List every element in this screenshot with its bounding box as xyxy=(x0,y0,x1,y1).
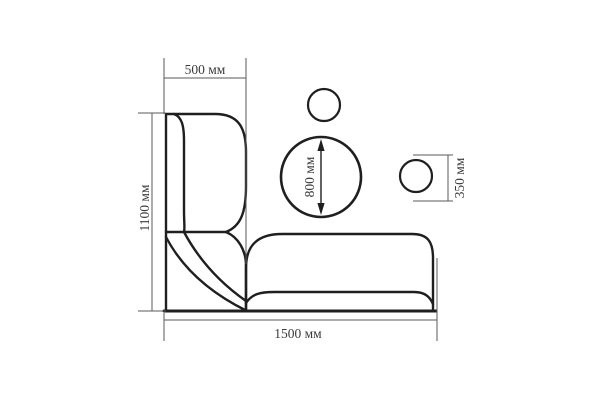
technical-drawing-canvas: 500 мм 1100 мм 1500 мм 800 мм 350 мм xyxy=(0,0,600,400)
diameter-arrow xyxy=(317,139,324,215)
label-large-table-diameter: 800 мм xyxy=(302,156,317,197)
seat-outline-path xyxy=(246,234,433,311)
label-small-table-diameter: 350 мм xyxy=(452,157,467,198)
label-bottom-length: 1500 мм xyxy=(274,326,322,341)
backrest-seam-path xyxy=(174,114,184,232)
dimension-drawing-svg: 500 мм 1100 мм 1500 мм 800 мм 350 мм xyxy=(0,0,600,400)
small-top-table-circle xyxy=(308,89,340,121)
corner-sweep-outer-path xyxy=(166,237,247,311)
label-left-height: 1100 мм xyxy=(137,184,152,231)
dimension-lines xyxy=(138,58,453,341)
arrow-down-head-icon xyxy=(317,203,324,215)
arrow-up-head-icon xyxy=(317,139,324,151)
small-right-table-circle xyxy=(400,160,432,192)
seat-seam-path xyxy=(246,292,433,304)
label-top-width: 500 мм xyxy=(185,62,226,77)
backrest-outline-path xyxy=(166,114,246,311)
